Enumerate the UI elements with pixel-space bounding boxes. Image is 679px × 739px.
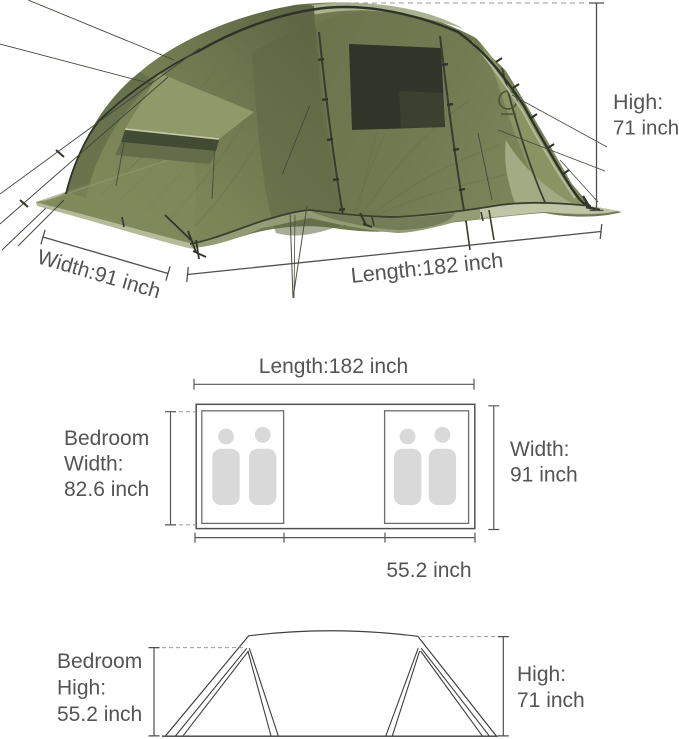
svg-text:Width:: Width: (64, 453, 124, 476)
svg-text:Length:182 inch: Length:182 inch (259, 355, 408, 378)
svg-text:Width:91 inch: Width:91 inch (35, 246, 164, 304)
svg-text:Bedroom: Bedroom (57, 650, 142, 673)
svg-text:55.2 inch: 55.2 inch (386, 559, 471, 582)
svg-text:High:: High: (517, 663, 566, 686)
svg-text:Bedroom: Bedroom (64, 427, 149, 450)
svg-text:71 inch: 71 inch (517, 689, 585, 712)
svg-text:Width:: Width: (510, 438, 570, 461)
svg-text:High:: High: (613, 90, 663, 114)
svg-text:82.6 inch: 82.6 inch (64, 478, 149, 501)
svg-text:High:: High: (57, 677, 106, 700)
svg-text:71 inch: 71 inch (613, 117, 679, 140)
svg-text:Length:182 inch: Length:182 inch (350, 248, 505, 288)
svg-text:55.2 inch: 55.2 inch (57, 703, 142, 726)
svg-text:91 inch: 91 inch (510, 464, 578, 487)
